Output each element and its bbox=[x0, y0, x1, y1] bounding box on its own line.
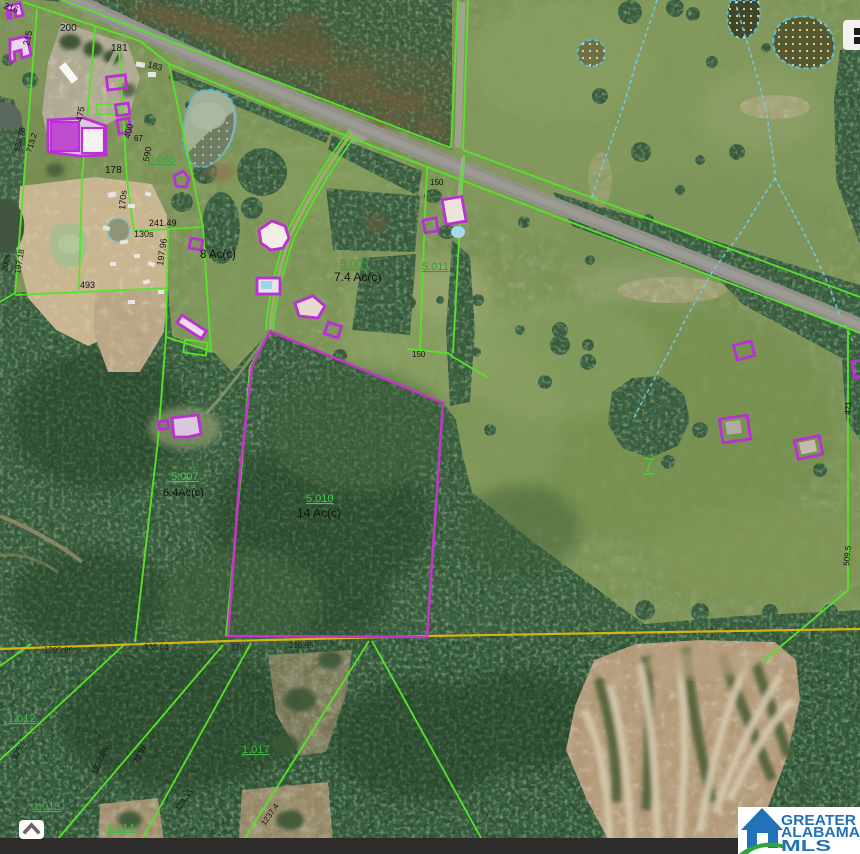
svg-text:310.65: 310.65 bbox=[289, 641, 314, 650]
svg-text:MLS: MLS bbox=[781, 838, 831, 854]
svg-text:130s: 130s bbox=[134, 229, 154, 239]
svg-text:181: 181 bbox=[111, 43, 128, 54]
svg-text:7: 7 bbox=[643, 455, 654, 477]
svg-text:200: 200 bbox=[60, 23, 77, 34]
svg-text:5.007: 5.007 bbox=[171, 471, 199, 483]
svg-text:150: 150 bbox=[430, 178, 444, 187]
svg-text:1295.86: 1295.86 bbox=[44, 646, 73, 655]
svg-text:421: 421 bbox=[843, 401, 853, 416]
svg-text:1.012: 1.012 bbox=[8, 713, 36, 725]
svg-text:6.4Ac(c): 6.4Ac(c) bbox=[163, 487, 204, 499]
svg-text:12: 12 bbox=[4, 20, 18, 34]
svg-text:178: 178 bbox=[105, 165, 122, 176]
svg-text:335.04: 335.04 bbox=[144, 643, 169, 652]
svg-text:493: 493 bbox=[80, 280, 95, 290]
svg-text:150: 150 bbox=[412, 350, 426, 359]
svg-text:170s: 170s bbox=[117, 189, 129, 210]
svg-text:120: 120 bbox=[231, 643, 245, 652]
svg-text:67: 67 bbox=[134, 134, 143, 143]
svg-text:1.013: 1.013 bbox=[33, 801, 61, 813]
svg-text:509.5: 509.5 bbox=[842, 545, 853, 566]
svg-text:5.001: 5.001 bbox=[340, 257, 370, 271]
svg-text:7.4 Ac(c): 7.4 Ac(c) bbox=[334, 270, 381, 284]
svg-text:14 Ac(c): 14 Ac(c) bbox=[297, 506, 341, 520]
svg-text:5.010: 5.010 bbox=[306, 493, 334, 505]
svg-text:5.068: 5.068 bbox=[148, 154, 176, 166]
svg-text:1.017: 1.017 bbox=[242, 744, 270, 756]
svg-text:8 Ac(c): 8 Ac(c) bbox=[200, 249, 236, 261]
svg-text:5.011: 5.011 bbox=[422, 261, 449, 273]
svg-text:1.014: 1.014 bbox=[107, 822, 135, 834]
svg-text:241.49: 241.49 bbox=[149, 218, 177, 228]
